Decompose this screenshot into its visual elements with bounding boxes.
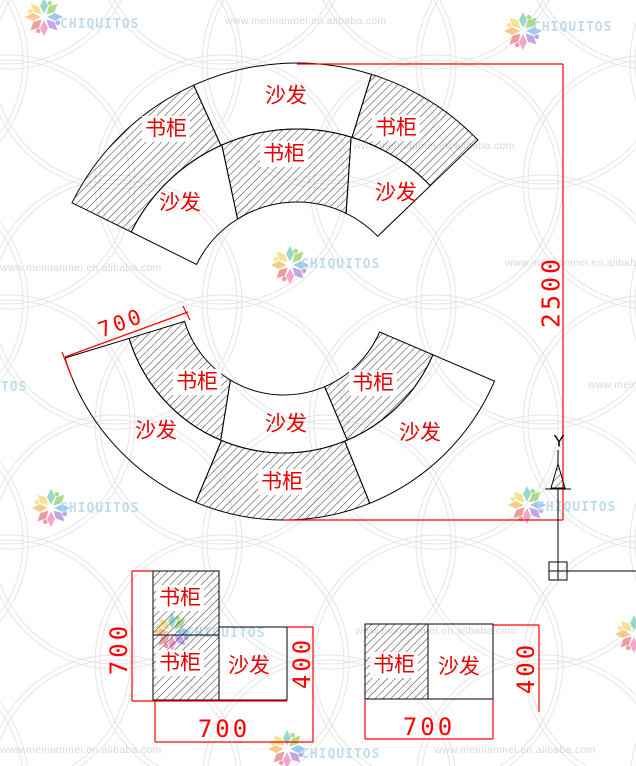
cad-canvas: CHIQUITOSCHIQUITOSCHIQUITOSCHIQUITOSCHIQ… [0,0,636,766]
dimension-text: 2500 [537,256,566,328]
label-sofa: 沙发 [399,422,441,445]
label-sofa: 沙发 [159,192,201,215]
label-sofa: 沙发 [375,182,417,205]
label-bookcase: 书柜 [145,118,187,141]
label-bookcase: 书柜 [159,652,201,675]
dimension-text: 700 [403,713,455,741]
label-bookcase: 书柜 [159,587,201,610]
dim-700-left-b: 700 [155,701,313,743]
ucs-axis-icon: Y [545,432,636,581]
dimension-text: 400 [288,637,316,689]
label-bookcase: 书柜 [373,654,415,677]
label-bookcase: 书柜 [375,117,417,140]
axis-y-label: Y [553,432,564,451]
label-sofa: 沙发 [135,420,177,443]
dimension-text: 400 [512,642,540,694]
dim-400-right: 400 [493,625,540,712]
label-sofa: 沙发 [265,413,307,436]
dim-700-right: 700 [365,699,493,741]
lower-fan-labels: 书柜沙发书柜沙发书柜沙发 [135,369,441,495]
label-bookcase: 书柜 [352,372,394,395]
label-sofa: 沙发 [228,655,270,678]
label-bookcase: 书柜 [176,371,218,394]
dimension-text: 700 [198,715,250,743]
dim-400-left: 400 [287,627,316,742]
label-sofa: 沙发 [438,656,480,679]
label-bookcase: 书柜 [263,143,305,166]
dimension-text: 700 [105,623,133,675]
label-sofa: 沙发 [265,85,307,108]
cad-drawing: 书柜沙发书柜书柜沙发沙发书柜沙发书柜沙发书柜沙发书柜书柜沙发书柜沙发250070… [0,0,636,766]
label-bookcase: 书柜 [261,471,303,494]
